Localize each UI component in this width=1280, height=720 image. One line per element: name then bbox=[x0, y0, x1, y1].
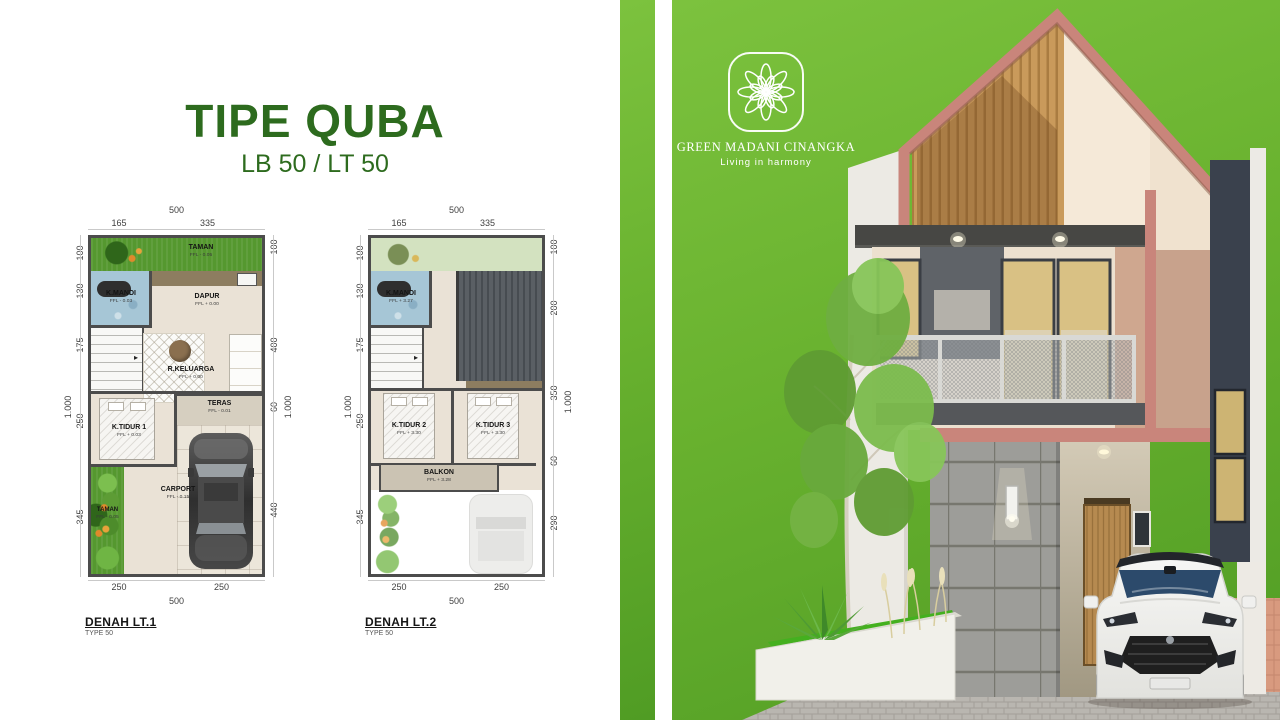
garden-plants bbox=[371, 492, 404, 574]
dim-label: 60 bbox=[269, 389, 279, 425]
car-ghost-icon bbox=[469, 494, 533, 574]
coffee-table-icon bbox=[169, 340, 191, 362]
lamp-bulb bbox=[1009, 516, 1015, 522]
pillow-icon bbox=[496, 397, 512, 406]
amber-window bbox=[1215, 458, 1245, 522]
room-teras: TERAS FFL - 0.01 bbox=[177, 400, 262, 414]
dim-label: 1.000 bbox=[343, 389, 353, 425]
dimension-line bbox=[360, 235, 361, 577]
wall-segment bbox=[451, 388, 454, 466]
dimension-line bbox=[553, 235, 554, 577]
room-ktidur2: K.TIDUR 2 FFL + 3.30 bbox=[373, 422, 445, 436]
pillow-icon bbox=[108, 402, 124, 411]
dimension-line bbox=[88, 580, 265, 581]
pillow-icon bbox=[412, 397, 428, 406]
dim-label: 335 bbox=[430, 218, 545, 228]
plan-lt2-drawing: K.MANDI FFL + 3.27 K.TIDUR 2 FFL + 3.30 bbox=[368, 235, 545, 577]
room-rkeluarga: R.KELUARGA FFL + 0.00 bbox=[131, 366, 251, 380]
dim-label: 250 bbox=[458, 582, 545, 592]
headlight-glint bbox=[1226, 619, 1231, 624]
dim-label: 440 bbox=[269, 492, 279, 528]
railing-post bbox=[1000, 337, 1004, 403]
downlight-icon bbox=[1055, 236, 1065, 242]
dim-label: 250 bbox=[368, 582, 430, 592]
kitchen-sink-icon bbox=[237, 273, 257, 286]
brand-tagline: Living in harmony bbox=[640, 157, 892, 168]
room-kmandi: K.MANDI FFL + 3.27 bbox=[371, 290, 431, 304]
dim-label: 400 bbox=[269, 327, 279, 363]
room-ktidur3: K.TIDUR 3 FFL + 3.30 bbox=[457, 422, 529, 436]
entry-side-window bbox=[1134, 512, 1150, 546]
floor-plan-lt2: 500 165 335 100 130 175 1.000 250 345 10… bbox=[340, 203, 588, 663]
dim-label: 1.000 bbox=[63, 389, 73, 425]
brand-block: GREEN MADANI CINANGKA Living in harmony bbox=[682, 52, 850, 168]
floor1-trim-band bbox=[920, 428, 1210, 442]
staircase bbox=[91, 327, 144, 391]
rearview-mirror bbox=[1164, 566, 1176, 574]
dimension-line bbox=[368, 580, 545, 581]
wall-segment bbox=[371, 325, 432, 328]
right-accent-panel bbox=[1210, 148, 1266, 562]
roof-below bbox=[456, 271, 542, 381]
brochure-page: TIPE QUBA LB 50 / LT 50 500 165 335 100 … bbox=[0, 0, 1280, 720]
dim-label: 165 bbox=[368, 218, 430, 228]
canopy bbox=[855, 225, 1150, 248]
upper-right-wall-pink bbox=[1150, 250, 1210, 428]
dim-label: 100 bbox=[549, 229, 559, 265]
brand-logo-frame bbox=[728, 52, 804, 132]
pillow-icon bbox=[475, 397, 491, 406]
side-mirror bbox=[1084, 596, 1098, 608]
amber-window bbox=[1215, 390, 1245, 454]
entry-downlight-glow bbox=[1097, 445, 1111, 459]
dimension-line bbox=[80, 235, 81, 577]
pillow-icon bbox=[130, 402, 146, 411]
side-mirror bbox=[1242, 596, 1256, 608]
wall-segment bbox=[371, 388, 542, 391]
green-accent-stripe bbox=[620, 0, 655, 720]
dim-label: 500 bbox=[88, 205, 265, 215]
interior-glimpse bbox=[934, 290, 990, 330]
dim-label: 1.000 bbox=[283, 389, 293, 425]
lotus-flower-icon bbox=[737, 63, 795, 121]
room-taman-side: TAMAN FFL - 0.05 bbox=[91, 506, 124, 520]
page-title: TIPE QUBA bbox=[70, 94, 560, 148]
floor-plan-lt1: 500 165 335 100 130 175 1.000 250 345 10… bbox=[60, 203, 308, 663]
staircase bbox=[371, 327, 424, 391]
railing-post bbox=[938, 337, 942, 403]
eave-band bbox=[855, 225, 1150, 247]
downlight-icon bbox=[953, 236, 963, 242]
brand-name: GREEN MADANI CINANGKA bbox=[640, 140, 892, 155]
dim-label: 100 bbox=[269, 229, 279, 265]
railing-post bbox=[1132, 337, 1136, 403]
page-subtitle: LB 50 / LT 50 bbox=[70, 150, 560, 179]
dim-label: 335 bbox=[150, 218, 265, 228]
dim-label: 500 bbox=[88, 596, 265, 606]
hero-panel: GREEN MADANI CINANGKA Living in harmony bbox=[672, 0, 1280, 720]
garden-plants bbox=[91, 467, 124, 574]
white-edge-wall bbox=[1250, 148, 1266, 562]
dimension-line bbox=[368, 229, 545, 230]
plan-caption-lt1: DENAH LT.1 TYPE 50 bbox=[85, 615, 156, 637]
dim-label: 500 bbox=[368, 205, 545, 215]
dim-label: 60 bbox=[549, 443, 559, 479]
room-taman: TAMAN FFL - 0.05 bbox=[151, 244, 251, 258]
dim-label: 165 bbox=[88, 218, 150, 228]
stone-wall-shadow bbox=[1056, 442, 1060, 697]
dim-label: 290 bbox=[549, 505, 559, 541]
room-carport: CARPORT FFL - 0.15 bbox=[143, 486, 213, 500]
dim-label: 250 bbox=[88, 582, 150, 592]
room-ktidur1: K.TIDUR 1 FFL + 0.03 bbox=[93, 424, 165, 438]
car-topview-icon bbox=[188, 432, 254, 570]
dimension-line bbox=[273, 235, 274, 577]
railing-post bbox=[1062, 337, 1066, 403]
dim-label: 500 bbox=[368, 596, 545, 606]
plan-lt1-drawing: TAMAN FFL - 0.05 K.MANDI FFL - 0.03 DAPU… bbox=[88, 235, 265, 577]
dim-label: 200 bbox=[549, 290, 559, 326]
railing-top-rail bbox=[874, 335, 1136, 340]
plan-caption-lt2: DENAH LT.2 TYPE 50 bbox=[365, 615, 436, 637]
car-glass bbox=[476, 517, 526, 529]
dimension-line bbox=[88, 229, 265, 230]
pillow-icon bbox=[391, 397, 407, 406]
dim-label: 1.000 bbox=[563, 384, 573, 420]
dim-label: 350 bbox=[549, 375, 559, 411]
corner-trim bbox=[1145, 190, 1156, 430]
room-balkon: BALKON FFL + 3.28 bbox=[379, 469, 499, 483]
garden-below bbox=[371, 238, 542, 271]
gable-wall-cream bbox=[1064, 28, 1150, 225]
room-dapur: DAPUR FFL + 0.00 bbox=[152, 293, 262, 307]
room-kmandi: K.MANDI FFL - 0.03 bbox=[91, 290, 151, 304]
license-plate bbox=[1150, 678, 1190, 689]
headlight-glint bbox=[1110, 619, 1115, 624]
dim-label: 250 bbox=[178, 582, 265, 592]
car-badge-icon bbox=[1166, 636, 1174, 644]
wall-segment bbox=[91, 325, 152, 328]
car-roof bbox=[478, 531, 524, 561]
